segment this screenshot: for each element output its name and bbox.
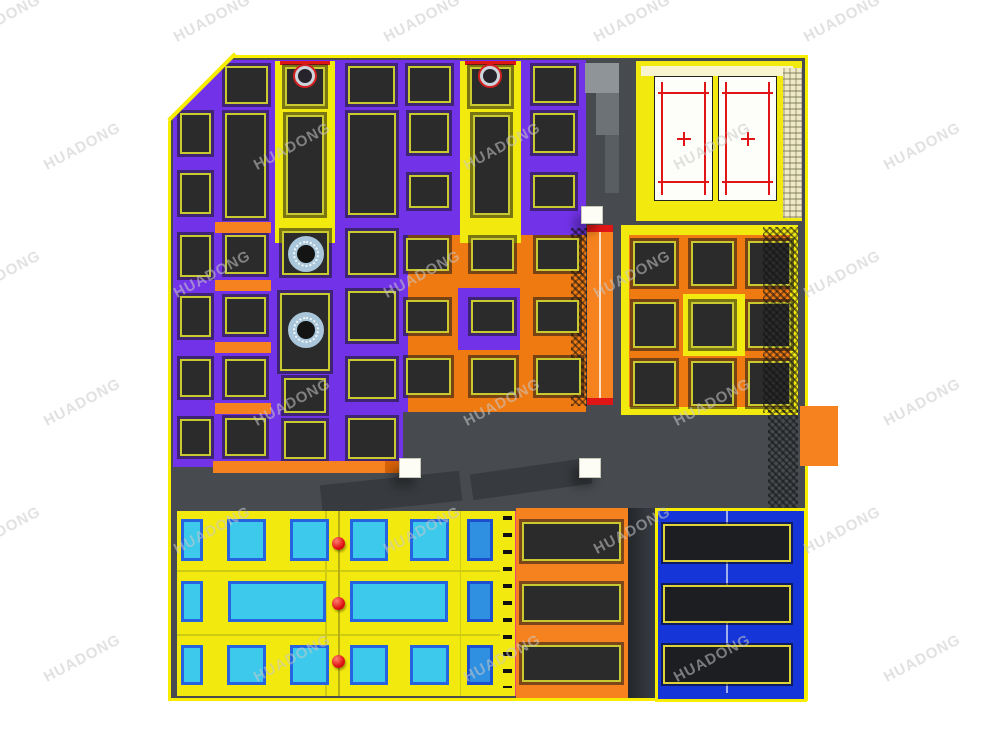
pad-separator: [215, 222, 271, 233]
purple-mat: [225, 113, 266, 218]
watermark-text: HUADONG: [881, 631, 964, 686]
watermark-text: HUADONG: [881, 375, 964, 430]
purple-mat: [409, 113, 449, 153]
watermark-text: HUADONG: [801, 0, 884, 46]
pad-separator: [215, 280, 271, 291]
orange-grid-mat: [633, 241, 676, 286]
purple-mat: [533, 175, 575, 208]
center-mat: [536, 300, 579, 333]
center-mat: [406, 358, 451, 395]
platform-step-3: [605, 135, 619, 193]
court-line: [683, 132, 685, 146]
zone-edge-pad-tip: [385, 461, 399, 473]
court-line: [661, 82, 663, 195]
bench: [579, 458, 601, 478]
watermark-text: HUADONG: [881, 119, 964, 174]
pad-separator: [215, 403, 271, 414]
divider-cap-top: [587, 225, 613, 232]
airbag-exit-block: [800, 406, 838, 466]
kids-mat: [410, 519, 449, 561]
kids-mat: [181, 645, 203, 685]
court-line: [768, 82, 770, 195]
wall-pad: [180, 296, 211, 337]
kids-mat: [467, 645, 493, 685]
kids-mat: [350, 519, 388, 561]
purple-mat: [348, 66, 395, 104]
wall-pad: [180, 113, 211, 154]
court-line: [747, 132, 749, 146]
purple-mat: [408, 66, 451, 103]
pad-separator: [215, 342, 271, 353]
watermark-text: HUADONG: [171, 0, 254, 46]
divider-wall-line: [599, 229, 601, 401]
purple-mat: [348, 418, 396, 459]
kids-mat: [227, 519, 266, 561]
wall-pad: [180, 173, 211, 214]
purple-mat: [348, 359, 396, 399]
ladder-rungs: [503, 516, 512, 688]
court-line: [658, 92, 709, 94]
floorplan-render: HUADONGHUADONGHUADONGHUADONGHUADONGHUADO…: [0, 0, 1000, 750]
kids-mat: [467, 581, 493, 622]
kids-mat: [290, 519, 329, 561]
wall-pad: [180, 235, 211, 277]
court-line: [658, 181, 709, 183]
foam-ring: [288, 312, 324, 348]
zone-edge-pad: [213, 461, 399, 473]
purple-mat: [348, 113, 396, 215]
center-mat: [406, 300, 449, 333]
court-line: [722, 92, 773, 94]
kids-zone-seam: [460, 511, 461, 696]
kids-mat: [181, 581, 203, 622]
platform-step-1: [585, 63, 619, 93]
purple-mat: [284, 378, 326, 413]
bench: [399, 458, 421, 478]
orange-grid-net: [763, 227, 798, 413]
center-mat: [536, 358, 581, 395]
wall-pad: [180, 359, 211, 397]
court-line: [704, 82, 706, 195]
courts-net: [783, 68, 802, 218]
kids-mat: [181, 519, 203, 561]
battle-mat: [663, 645, 791, 684]
kids-mat: [290, 645, 329, 685]
bench: [581, 206, 603, 224]
orange-grid-mat: [691, 302, 734, 348]
platform-step-2: [596, 93, 619, 135]
center-mat: [471, 358, 516, 395]
slide-zone-dark-band: [628, 508, 655, 698]
slide-mat: [522, 645, 621, 682]
battle-mat: [663, 585, 791, 623]
court-line: [722, 181, 773, 183]
orange-grid-mat: [633, 302, 676, 348]
purple-mat: [409, 175, 449, 208]
red-ball: [332, 597, 345, 610]
foam-ring: [288, 236, 324, 272]
slide-mat: [522, 584, 621, 622]
watermark-text: HUADONG: [0, 247, 44, 302]
purple-mat: [348, 231, 396, 275]
floor-shadow: [320, 471, 462, 515]
purple-mat: [225, 297, 266, 334]
right-wall-net: [768, 410, 798, 510]
purple-mat: [225, 418, 266, 456]
center-mat: [471, 300, 514, 333]
courts-top-wall: [641, 66, 793, 76]
wall-pad: [180, 419, 211, 456]
watermark-text: HUADONG: [591, 0, 674, 46]
purple-mat: [533, 113, 575, 153]
dunk-lane-2-backboard: [465, 61, 516, 65]
floor-shadow: [470, 458, 592, 500]
kids-mat-long: [350, 581, 448, 622]
center-mat: [536, 238, 579, 271]
purple-mat: [225, 235, 266, 274]
kids-mat: [350, 645, 388, 685]
watermark-text: HUADONG: [801, 247, 884, 302]
dunk-lane-2-runway: [473, 115, 510, 215]
red-ball: [332, 537, 345, 550]
center-mat: [471, 238, 514, 271]
slide-mat: [522, 522, 621, 561]
watermark-text: HUADONG: [381, 0, 464, 46]
orange-grid-mat: [691, 241, 734, 286]
orange-grid-mat: [633, 361, 676, 406]
dodgeball-court-right: [718, 76, 777, 201]
orange-grid-mat: [691, 361, 734, 406]
dodgeball-court-left: [654, 76, 713, 201]
kids-mat-long: [228, 581, 326, 622]
dunk-hoop: [295, 66, 315, 86]
dunk-hoop: [480, 66, 500, 86]
purple-mat: [225, 66, 268, 104]
watermark-text: HUADONG: [0, 0, 44, 46]
center-mat: [406, 238, 449, 271]
watermark-text: HUADONG: [41, 119, 124, 174]
purple-mat: [284, 421, 326, 459]
kids-mat: [227, 645, 266, 685]
watermark-text: HUADONG: [801, 503, 884, 558]
purple-mat: [533, 66, 576, 103]
kids-mat: [467, 519, 493, 561]
trampoline-park-plan: [168, 55, 808, 701]
kids-mat: [410, 645, 449, 685]
watermark-text: HUADONG: [41, 631, 124, 686]
dunk-lane-1-runway: [286, 115, 324, 215]
purple-mat: [225, 359, 266, 397]
court-line: [725, 82, 727, 195]
watermark-text: HUADONG: [0, 503, 44, 558]
red-ball: [332, 655, 345, 668]
divider-cap-bottom: [587, 398, 613, 405]
watermark-text: HUADONG: [41, 375, 124, 430]
purple-mat: [348, 291, 396, 341]
dunk-lane-1-backboard: [280, 61, 330, 65]
battle-mat: [663, 524, 791, 562]
